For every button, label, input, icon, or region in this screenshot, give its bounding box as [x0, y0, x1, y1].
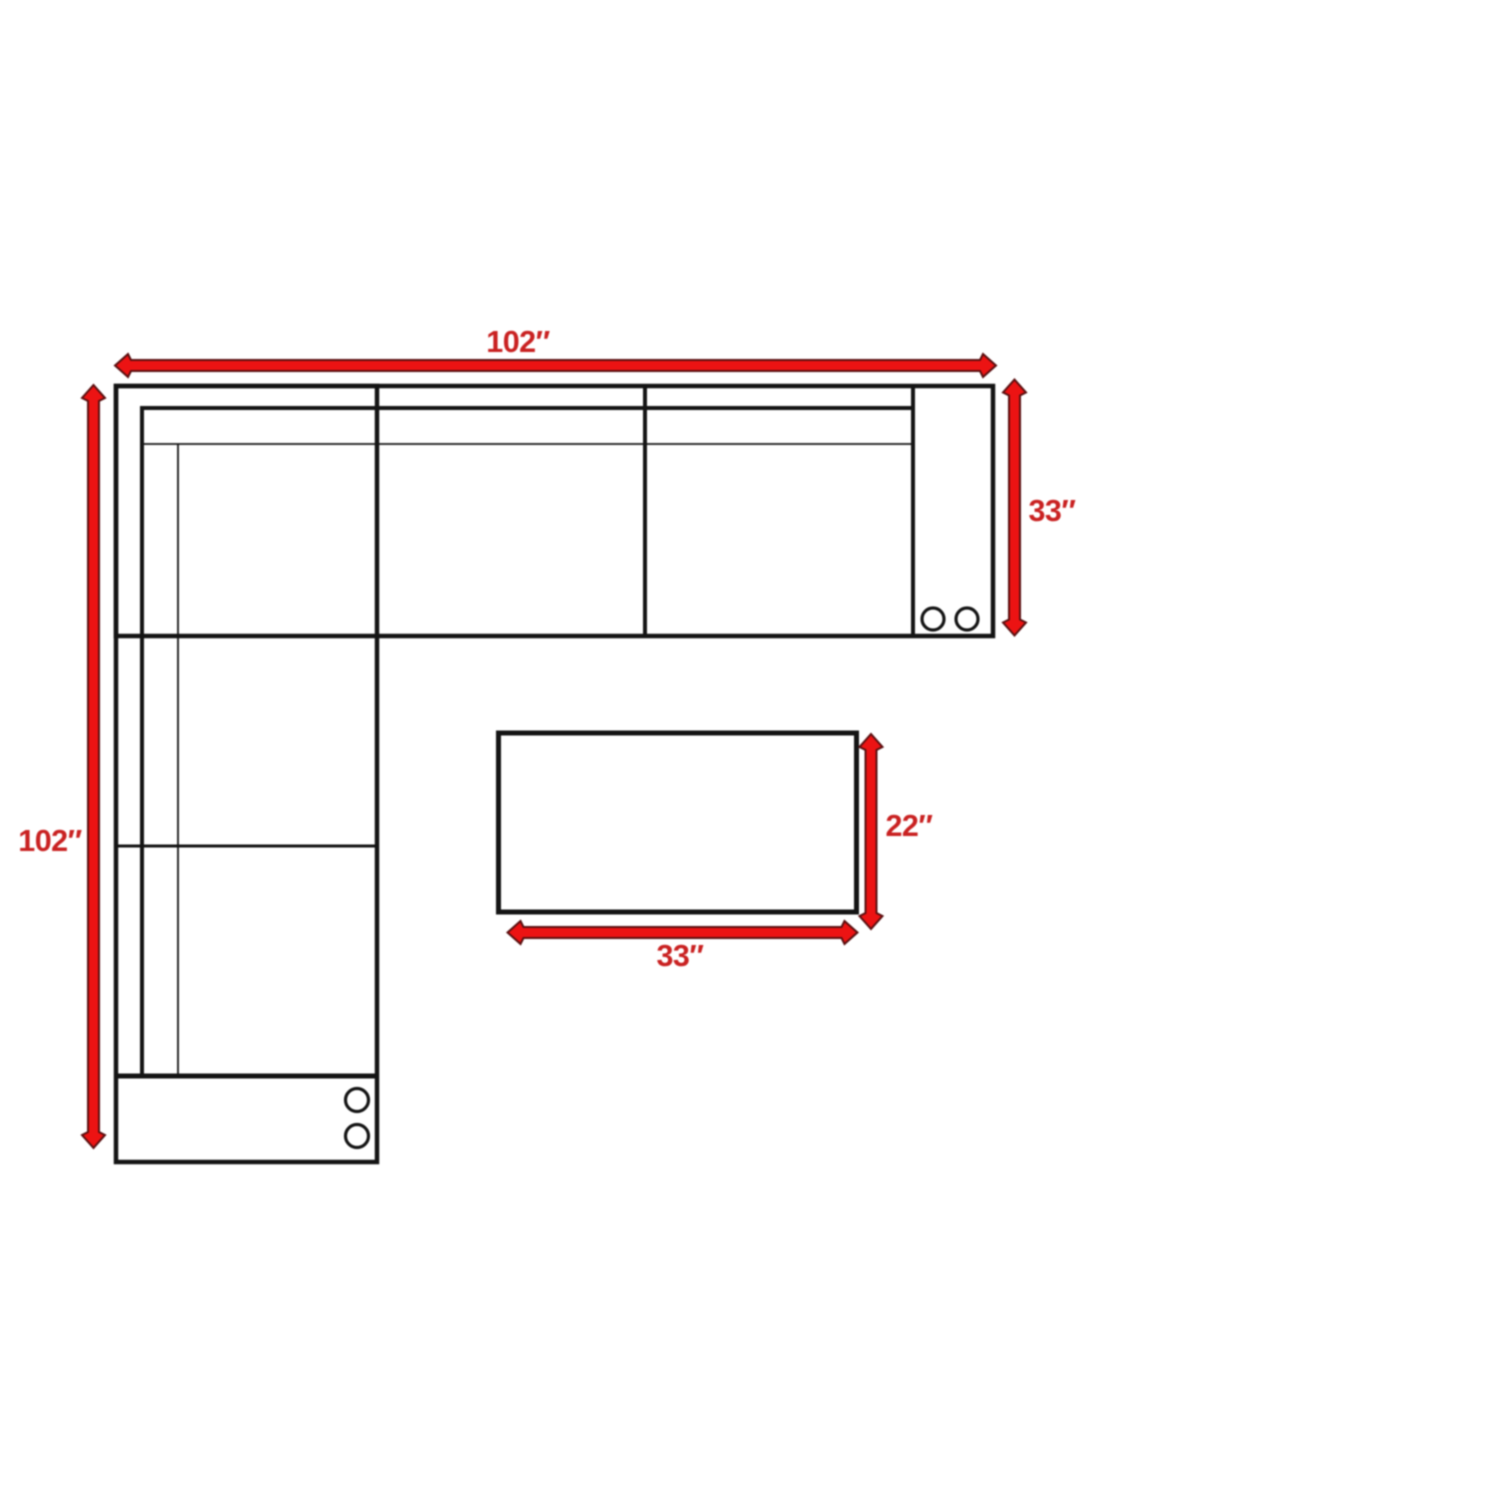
svg-text:102″: 102″: [486, 325, 550, 359]
svg-text:102″: 102″: [18, 824, 82, 858]
svg-text:22″: 22″: [885, 809, 933, 843]
svg-text:33″: 33″: [656, 939, 704, 973]
svg-text:33″: 33″: [1028, 494, 1076, 528]
